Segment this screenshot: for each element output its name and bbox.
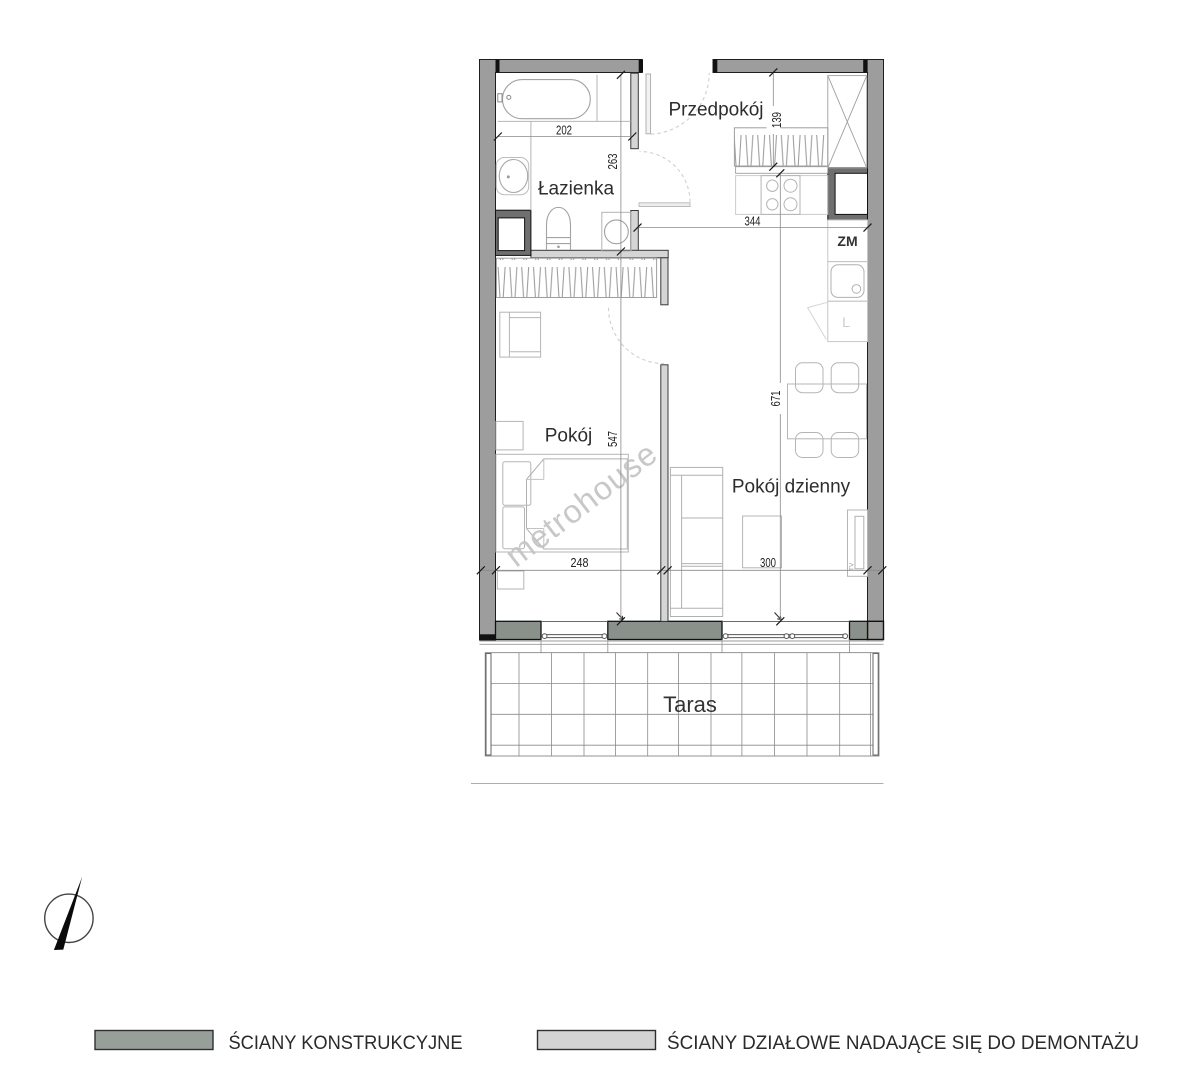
svg-text:Łazienka: Łazienka — [538, 179, 614, 200]
svg-text:ŚCIANY DZIAŁOWE NADAJĄCE SIĘ D: ŚCIANY DZIAŁOWE NADAJĄCE SIĘ DO DEMONTAŻ… — [667, 1032, 1139, 1054]
svg-text:202: 202 — [556, 124, 572, 138]
svg-text:TV: TV — [849, 562, 856, 571]
svg-text:Pokój dzienny: Pokój dzienny — [732, 476, 851, 497]
svg-text:139: 139 — [770, 112, 784, 128]
svg-text:Przedpokój: Przedpokój — [668, 99, 763, 120]
svg-text:Pokój: Pokój — [545, 426, 593, 447]
svg-text:248: 248 — [571, 556, 589, 570]
svg-text:344: 344 — [745, 214, 761, 228]
svg-text:ZM: ZM — [837, 233, 857, 249]
svg-text:547: 547 — [606, 431, 620, 447]
svg-text:Taras: Taras — [663, 692, 717, 717]
svg-text:L: L — [842, 314, 850, 330]
svg-text:263: 263 — [606, 153, 620, 169]
svg-text:300: 300 — [760, 556, 776, 570]
svg-text:ŚCIANY KONSTRUKCYJNE: ŚCIANY KONSTRUKCYJNE — [229, 1032, 463, 1054]
svg-text:671: 671 — [769, 390, 783, 406]
